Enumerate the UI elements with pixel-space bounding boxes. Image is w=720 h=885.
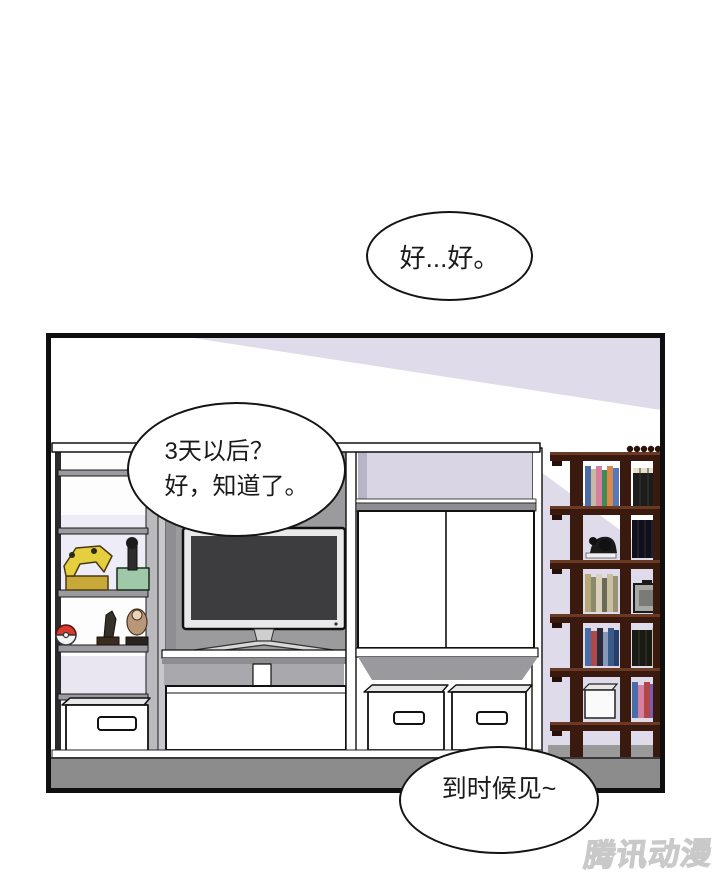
speech-text: 到时候见~	[442, 769, 557, 805]
cabinet-shelf	[356, 503, 536, 511]
tv-shelf-edge	[162, 658, 346, 664]
cabinet-post-left	[346, 448, 356, 754]
storage-box-right	[448, 685, 532, 750]
speech-bubble-top: 好...好。	[366, 211, 533, 301]
storage-box-middle	[364, 685, 448, 750]
bookshelf-white-box	[583, 684, 617, 718]
bookshelf-post	[653, 452, 661, 758]
bookshelf-post	[570, 452, 583, 758]
pokeball	[56, 625, 76, 645]
tencent-comics-watermark: 腾讯动漫	[582, 828, 717, 875]
shelf-bracket	[253, 664, 271, 688]
room-scene	[0, 0, 720, 885]
speech-text: 3天以后？ 好，知道了。	[165, 435, 309, 503]
cabinet-lower-shelf	[356, 648, 538, 657]
cabinet-top-shade	[358, 452, 367, 502]
bookshelf-post	[620, 452, 631, 758]
cabinet-top-compartment	[358, 452, 532, 502]
tv-unit-drawer	[166, 686, 346, 750]
top-trim-books	[627, 446, 661, 452]
speech-bubble-left: 3天以后？ 好，知道了。	[127, 402, 346, 537]
bookshelf-shadow	[548, 745, 661, 759]
cabinet-shelf-lip	[356, 499, 536, 503]
storage-box-left	[62, 698, 150, 753]
monkey-figurine	[126, 609, 148, 645]
left-unit-side	[55, 448, 61, 754]
tv-screen	[191, 536, 337, 620]
cabinet-unit	[346, 448, 542, 754]
tv-power-light	[334, 622, 337, 625]
speech-text: 好...好。	[400, 238, 500, 275]
speech-bubble-bottom: 到时候见~	[399, 746, 599, 854]
cabinet-lower-surface	[358, 657, 538, 680]
book-row	[585, 574, 618, 612]
left-unit-back-shade2	[61, 656, 153, 698]
tv-shelf	[162, 650, 346, 658]
comic-page: 好...好。 3天以后？ 好，知道了。 到时候见~ 腾讯动漫	[0, 0, 720, 885]
